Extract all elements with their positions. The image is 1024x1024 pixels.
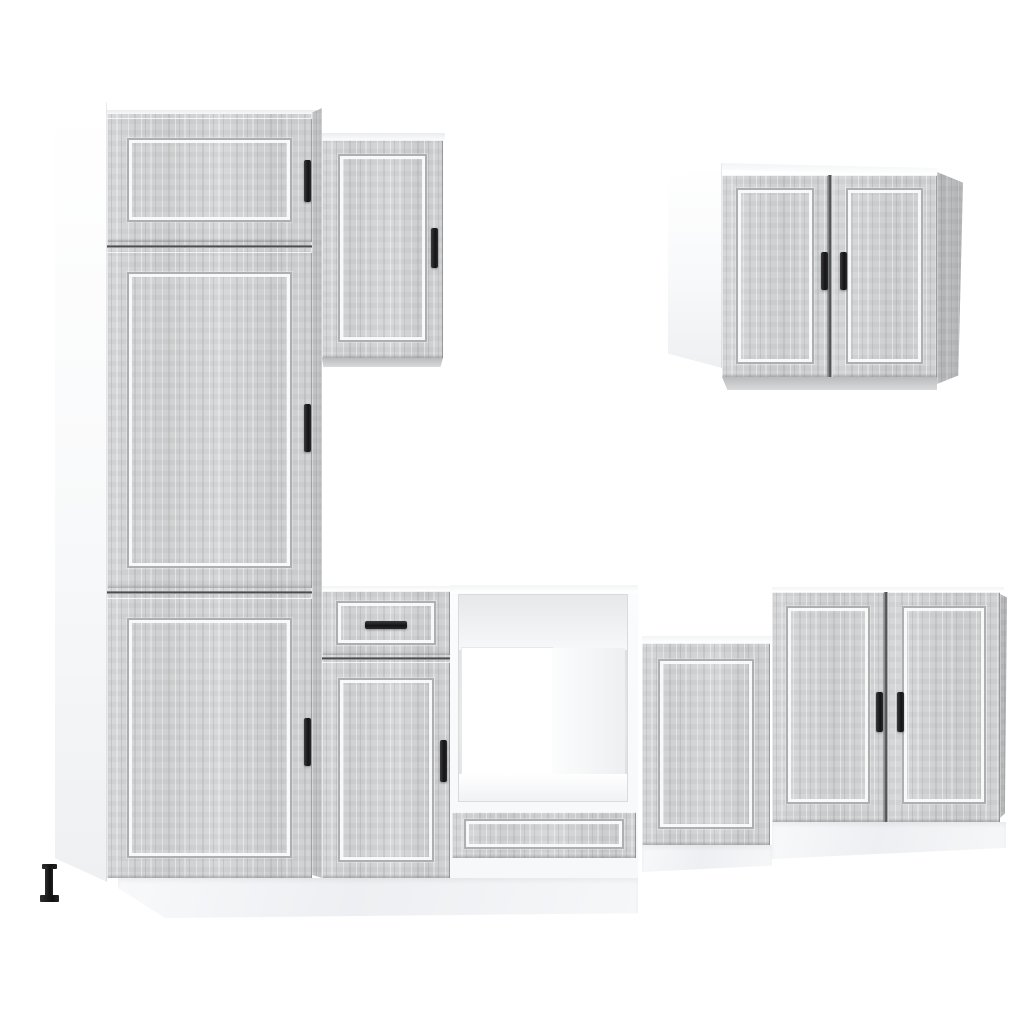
cabinet-door [322, 140, 443, 358]
tall-pantry-cabinet [40, 100, 322, 902]
drawer-door-gap-line [322, 657, 450, 660]
door-recessed-panel [902, 606, 986, 804]
cabinet-door [107, 598, 312, 878]
horizontal-bar-handle [365, 621, 407, 629]
vertical-bar-handle [840, 252, 847, 290]
cabinet-top-edge [450, 585, 638, 593]
cabinet-right-side-panel [937, 172, 963, 384]
oven-cavity [458, 594, 628, 802]
cabinet-door [642, 643, 770, 845]
wall-cabinet-single-door [322, 133, 450, 367]
kickboard-plinth-right [772, 822, 1006, 859]
wall-cabinet-double-door [668, 163, 968, 393]
vertical-bar-handle [876, 692, 883, 732]
door-recessed-panel [736, 188, 814, 364]
cabinet-front [722, 175, 937, 377]
foot-base [40, 895, 59, 902]
door-recessed-panel [658, 659, 754, 829]
white-side-panel [668, 163, 722, 368]
cabinet-door [107, 252, 312, 588]
cabinet-front [107, 114, 312, 878]
door-recessed-panel [786, 606, 870, 804]
cavity-floor [459, 774, 627, 801]
door-recessed-panel [127, 272, 292, 568]
product-photo-kitchen-cabinet-set [0, 0, 1024, 1024]
cabinet-door [107, 118, 312, 242]
base-cabinet-single-door-low [642, 636, 772, 845]
cabinet-front [772, 592, 1000, 822]
vertical-bar-handle [897, 692, 904, 732]
cabinet-door-left [722, 175, 828, 377]
cabinet-top-edge [642, 636, 772, 643]
cabinet-bottom-face [322, 358, 443, 367]
cabinet-door [322, 662, 450, 878]
vertical-bar-handle [304, 160, 311, 202]
drawer-recessed-panel [464, 819, 624, 849]
drawer-front [322, 591, 450, 655]
door-recessed-panel [338, 154, 427, 342]
door-recessed-panel [127, 138, 292, 222]
cavity-right-wall [552, 648, 625, 776]
cabinet-right-side-edge [312, 108, 322, 878]
cabinet-door-left [772, 592, 884, 822]
door-recessed-panel [846, 188, 923, 364]
cabinet-door-right [832, 175, 937, 377]
kickboard-plinth-center-right [642, 845, 772, 872]
vertical-bar-handle [821, 252, 828, 290]
vertical-bar-handle [304, 718, 311, 766]
cabinet-front [322, 591, 450, 878]
cabinet-top-edge [322, 133, 445, 140]
foot-stem [45, 866, 53, 897]
kickboard-plinth-left [118, 878, 638, 918]
oven-housing-cabinet [450, 585, 638, 878]
door-gap-line [107, 591, 312, 594]
cabinet-top-edge [722, 163, 937, 175]
vertical-bar-handle [440, 740, 447, 782]
cavity-back-panel [462, 648, 552, 776]
drawer-front [452, 812, 636, 858]
door-gap-line [107, 245, 312, 248]
white-side-panel [55, 100, 107, 885]
cabinet-bottom-face [722, 377, 937, 390]
vertical-bar-handle [431, 228, 438, 268]
door-recessed-panel [127, 618, 292, 858]
base-cabinet-double-door [772, 587, 1012, 822]
base-cabinet-drawer-door [322, 586, 450, 878]
vertical-bar-handle [304, 404, 311, 452]
door-recessed-panel [338, 678, 434, 862]
adjustable-foot [40, 864, 59, 902]
cavity-ceiling [459, 595, 627, 650]
cabinet-door-right [888, 592, 1000, 822]
cabinet-right-side-edge [1000, 594, 1007, 818]
